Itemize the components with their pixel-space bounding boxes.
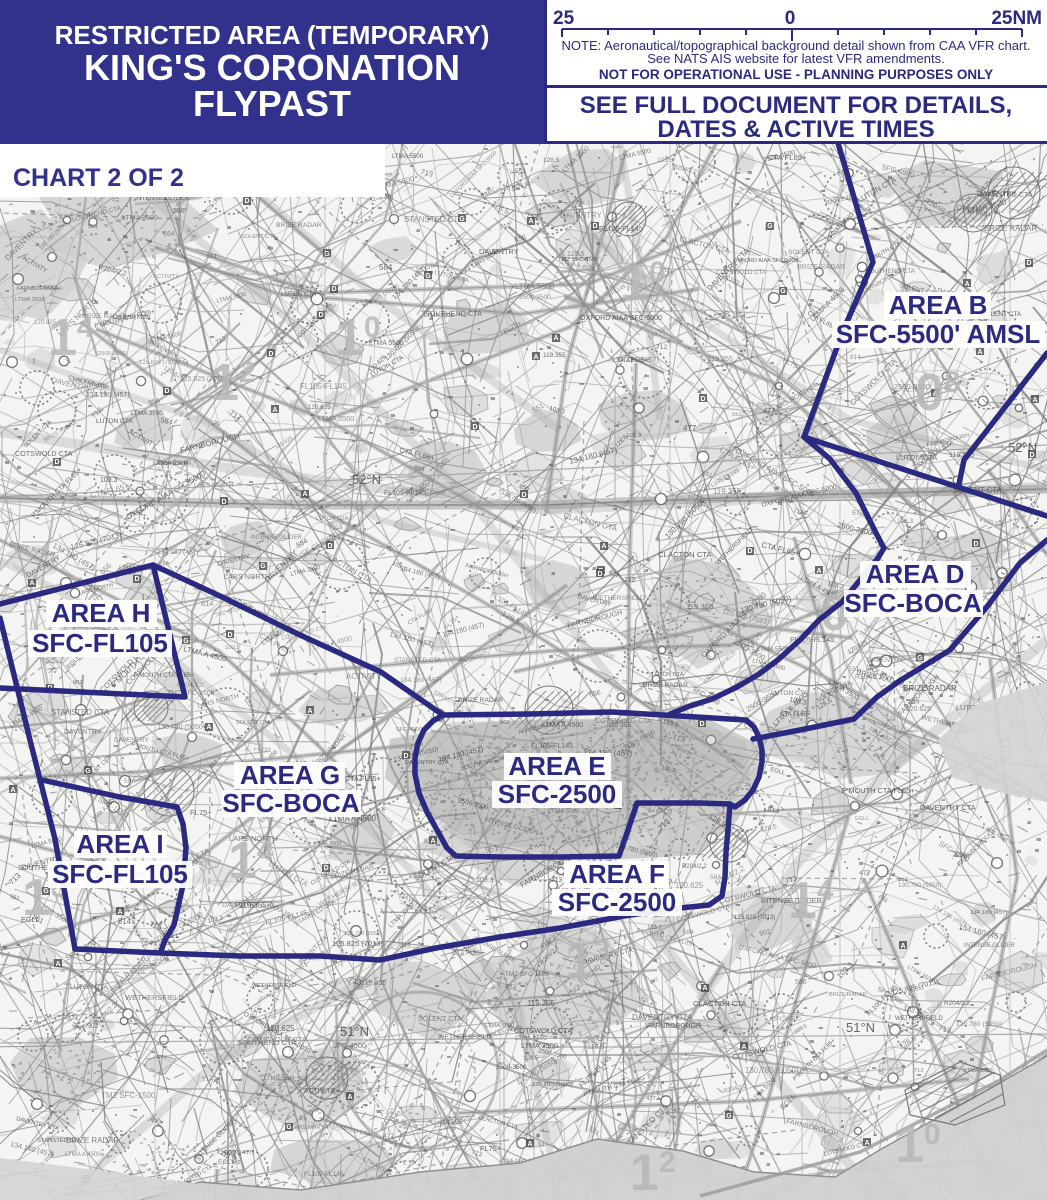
svg-text:LTMA 5500: LTMA 5500 [154,460,188,467]
svg-text:477: 477 [683,424,696,433]
svg-text:LTMA 5500: LTMA 5500 [548,808,580,815]
svg-text:712: 712 [656,344,667,351]
svg-text:SFC-FL105: SFC-FL105 [52,859,188,889]
svg-text:G: G [183,638,189,645]
svg-text:134.180 (457): 134.180 (457) [86,392,130,399]
svg-text:A: A [702,985,707,992]
svg-text:584: 584 [379,263,393,272]
svg-text:FL75+: FL75+ [190,808,212,817]
svg-text:103.3: 103.3 [476,877,494,884]
svg-text:814: 814 [850,354,861,361]
svg-text:551: 551 [207,254,217,260]
svg-text:D: D [747,548,752,555]
svg-text:LTMA 5500: LTMA 5500 [264,1076,295,1082]
svg-text:ACTIVITY: ACTIVITY [304,1088,335,1095]
svg-text:477: 477 [763,406,775,415]
svg-text:D: D [699,721,704,728]
svg-text:WETHERSFIELD: WETHERSFIELD [252,983,296,989]
svg-text:SOLENT CTA: SOLENT CTA [236,720,271,726]
svg-text:DAVENTRY: DAVENTRY [977,189,1017,198]
svg-text:0: 0 [785,8,796,29]
svg-text:551: 551 [732,412,743,418]
svg-text:LTMA 3500: LTMA 3500 [122,214,158,222]
svg-text:AREA H: AREA H [52,598,151,628]
svg-text:25: 25 [553,8,575,29]
svg-text:713: 713 [551,877,563,884]
svg-text:LTMA 3500: LTMA 3500 [521,1041,558,1050]
svg-text:TMZ SFC-1500: TMZ SFC-1500 [101,1091,156,1100]
svg-text:A: A [206,724,211,731]
svg-text:LTMA 5500: LTMA 5500 [424,313,454,319]
svg-text:LUTON CTA: LUTON CTA [316,516,348,522]
svg-text:COTSWOLD CTA: COTSWOLD CTA [595,717,652,725]
svg-text:A: A [741,1044,746,1051]
svg-text:25NM: 25NM [991,8,1042,29]
svg-text:119.355: 119.355 [361,978,386,987]
svg-text:COTSWOLD CTA: COTSWOLD CTA [716,269,767,276]
svg-text:134.180 (457): 134.180 (457) [970,910,1007,916]
svg-text:103.3: 103.3 [225,645,241,651]
svg-text:A: A [900,943,905,950]
svg-text:STANSTED CTA: STANSTED CTA [51,708,110,717]
svg-text:STANSTED CTA: STANSTED CTA [37,1138,81,1144]
svg-text:477: 477 [646,1096,656,1102]
svg-text:G: G [917,655,923,662]
svg-text:BRIZE RADAR: BRIZE RADAR [903,684,957,693]
svg-text:INTENSE GLIDER: INTENSE GLIDER [251,534,302,541]
svg-text:D: D [403,753,408,760]
svg-text:BRIZE RADAR: BRIZE RADAR [984,224,1037,233]
svg-text:BRIZE RADAR: BRIZE RADAR [276,222,322,229]
svg-text:SFC-5500' AMSL: SFC-5500' AMSL [836,319,1041,349]
svg-text:128.5: 128.5 [523,1055,539,1062]
svg-text:CLACTON CTA: CLACTON CTA [658,550,712,559]
svg-text:2500-3500: 2500-3500 [496,1064,527,1071]
svg-text:2500-3500: 2500-3500 [98,351,126,357]
svg-text:D: D [323,865,328,872]
svg-text:DAVENTRY: DAVENTRY [560,211,603,220]
svg-text:A: A [553,335,558,342]
svg-text:A: A [430,838,435,845]
svg-text:103.3: 103.3 [100,477,118,484]
svg-text:125.825 (7013): 125.825 (7013) [332,939,383,948]
svg-text:SFC-BOCA: SFC-BOCA [222,788,359,818]
svg-text:SFC-BOCA: SFC-BOCA [844,588,981,618]
svg-text:G: G [425,273,431,280]
svg-text:477: 477 [383,1133,394,1140]
svg-text:SOLENT CTA: SOLENT CTA [788,249,829,256]
svg-text:P'MOUTH CTA FL65+: P'MOUTH CTA FL65+ [842,786,915,795]
svg-text:BRIZE RADAR: BRIZE RADAR [797,262,845,271]
svg-text:FL105-FL145: FL105-FL145 [300,382,347,391]
svg-text:STANSTED CTA: STANSTED CTA [404,215,464,224]
svg-text:A: A [307,708,312,715]
svg-text:FARNBOROUGH: FARNBOROUGH [647,1023,701,1030]
svg-text:814: 814 [201,599,213,608]
svg-text:SFC-4500: SFC-4500 [396,727,422,733]
svg-text:NOT FOR OPERATIONAL USE - PLAN: NOT FOR OPERATIONAL USE - PLANNING PURPO… [599,67,993,82]
svg-text:A: A [527,1141,532,1148]
svg-text:FLYPAST: FLYPAST [193,83,351,124]
svg-text:130.780 (5050): 130.780 (5050) [157,723,205,731]
svg-text:ACTIVITY: ACTIVITY [346,672,382,681]
svg-text:D: D [244,198,249,205]
svg-text:119.355: 119.355 [708,356,733,363]
svg-text:INTENSE GLIDER: INTENSE GLIDER [964,942,1015,949]
svg-text:SOUTHEND CTA: SOUTHEND CTA [237,1038,297,1047]
svg-text:CTA FL65+: CTA FL65+ [768,153,807,162]
svg-text:103.3: 103.3 [657,157,674,164]
svg-text:51°N: 51°N [846,1020,875,1035]
svg-text:119.355: 119.355 [543,352,566,359]
svg-text:D: D [521,492,526,499]
svg-text:119.355: 119.355 [527,999,556,1008]
svg-text:130.780 (5050): 130.780 (5050) [745,1066,799,1075]
svg-text:FL105-FL145: FL105-FL145 [599,224,643,233]
svg-text:FL75+: FL75+ [254,747,272,753]
svg-text:D: D [221,499,226,506]
svg-text:125.825 (7013): 125.825 (7013) [734,914,775,921]
svg-text:G: G [767,223,773,230]
svg-text:G: G [286,1124,292,1131]
svg-text:A: A [533,354,538,361]
svg-text:584: 584 [683,929,694,936]
svg-text:712: 712 [792,708,804,717]
svg-text:DAVENTRY: DAVENTRY [64,729,102,736]
svg-text:G: G [726,1113,732,1120]
svg-text:LUTON CTA: LUTON CTA [771,690,808,697]
svg-text:119.355: 119.355 [686,602,713,611]
svg-text:AREA D: AREA D [866,559,965,589]
svg-text:LUTON CTA: LUTON CTA [70,984,108,991]
svg-text:D: D [164,388,169,395]
svg-text:551: 551 [894,439,905,445]
svg-text:A: A [302,491,307,498]
svg-text:D: D [973,541,978,548]
svg-text:CHART 2 OF 2: CHART 2 OF 2 [13,164,184,192]
svg-text:OXFORD AIAA SFC-5000: OXFORD AIAA SFC-5000 [733,258,798,264]
svg-text:814: 814 [399,941,411,949]
svg-text:G: G [780,288,786,295]
svg-text:A: A [1032,397,1037,404]
svg-text:902: 902 [500,720,510,726]
svg-text:A: A [528,218,533,225]
svg-text:SFC-FL105: SFC-FL105 [32,628,168,658]
svg-text:OXFORD AIAA SFC-5000: OXFORD AIAA SFC-5000 [580,314,662,322]
svg-text:712: 712 [624,577,636,584]
svg-text:AREA E: AREA E [508,751,605,781]
svg-text:LTMA 3500: LTMA 3500 [15,297,45,303]
svg-text:D: D [331,286,336,293]
svg-text:LTMA A 4500: LTMA A 4500 [542,722,583,729]
svg-text:DATES & ACTIVE TIMES: DATES & ACTIVE TIMES [657,116,934,143]
svg-text:SFC-4500: SFC-4500 [332,1041,366,1050]
svg-text:A: A [55,961,60,968]
svg-text:RESTRICTED AREA (TEMPORARY): RESTRICTED AREA (TEMPORARY) [55,20,490,50]
svg-text:R204/2.2: R204/2.2 [682,863,707,870]
svg-text:125.825 (7013): 125.825 (7013) [139,360,180,366]
svg-text:712: 712 [914,1068,924,1074]
svg-text:477: 477 [859,870,871,877]
svg-text:D: D [700,396,705,403]
svg-text:LTMA 3500: LTMA 3500 [318,414,354,423]
svg-text:LARS NORTH: LARS NORTH [291,1125,328,1131]
svg-text:52°N: 52°N [1008,440,1037,455]
svg-text:AREA G: AREA G [240,760,340,790]
svg-text:902: 902 [73,680,83,686]
svg-text:130.780 (5050): 130.780 (5050) [956,1021,1002,1028]
svg-text:584: 584 [710,874,721,881]
svg-text:AREA I: AREA I [76,829,163,859]
svg-text:D: D [1026,260,1031,267]
svg-text:D: D [472,424,477,431]
svg-text:130.780 (5050): 130.780 (5050) [898,882,941,889]
svg-text:D: D [327,543,332,550]
svg-text:DAVENTRY CTA: DAVENTRY CTA [920,803,976,812]
svg-text:D: D [54,459,59,466]
svg-text:WETHERSFIELD: WETHERSFIELD [438,1034,491,1041]
svg-text:KING'S CORONATION: KING'S CORONATION [84,47,460,88]
svg-text:CLACTON CTA: CLACTON CTA [693,999,747,1008]
svg-text:FARNBOROUGH: FARNBOROUGH [17,286,61,292]
svg-text:A: A [816,568,821,575]
svg-text:COTSWOLD CTA: COTSWOLD CTA [15,449,73,458]
svg-text:LTMA A 4500: LTMA A 4500 [65,1151,101,1158]
svg-text:A: A [29,580,34,587]
svg-text:134.180 (457): 134.180 (457) [157,549,199,556]
svg-text:G: G [260,563,266,570]
svg-text:A: A [10,787,15,794]
svg-text:A: A [117,909,122,916]
svg-text:103.3: 103.3 [897,518,913,525]
svg-text:D: D [134,576,139,583]
svg-text:AREA B: AREA B [889,290,988,320]
svg-text:586: 586 [795,979,807,986]
svg-text:DAVENTRY CTA: DAVENTRY CTA [632,1013,693,1022]
svg-text:130.780 (5050): 130.780 (5050) [344,931,382,937]
svg-text:A: A [347,1094,352,1101]
svg-text:G: G [85,768,91,775]
svg-text:FL105-FL145: FL105-FL145 [304,1171,344,1178]
svg-text:586: 586 [173,208,185,215]
svg-text:134.180 (457): 134.180 (457) [400,677,442,684]
svg-text:119.355: 119.355 [713,487,742,496]
svg-text:LTMA 5500: LTMA 5500 [392,153,424,160]
svg-text:LUTON CTA: LUTON CTA [281,291,317,298]
svg-text:TMZ SFC-1500: TMZ SFC-1500 [505,971,549,978]
svg-text:BRIZE RADAR: BRIZE RADAR [458,697,503,704]
svg-text:2500-3500: 2500-3500 [314,841,341,847]
svg-text:FL75+: FL75+ [480,1144,501,1153]
svg-text:CTA FL65+: CTA FL65+ [618,357,649,364]
svg-text:584: 584 [163,230,175,238]
svg-text:LTMA 5500: LTMA 5500 [515,282,555,291]
svg-text:BRIZE RADAR: BRIZE RADAR [829,992,867,998]
svg-text:SFC-2500: SFC-2500 [498,779,617,809]
svg-text:COTSWOLD CTA: COTSWOLD CTA [514,1026,572,1035]
svg-text:120.625: 120.625 [675,881,704,890]
svg-text:2500-3500: 2500-3500 [519,294,551,301]
svg-text:D: D [592,223,597,230]
svg-text:120.625: 120.625 [308,404,331,411]
svg-text:DAVENTRY: DAVENTRY [867,657,904,664]
svg-text:A: A [272,407,277,414]
svg-text:A: A [964,281,969,288]
svg-text:SOLENT CTA: SOLENT CTA [241,234,276,240]
svg-text:128.5: 128.5 [543,157,560,164]
svg-text:STANSTED CTA: STANSTED CTA [394,657,442,664]
svg-text:R204/2.2: R204/2.2 [944,1000,970,1007]
svg-text:D: D [268,351,273,358]
svg-text:BRIZE RADAR: BRIZE RADAR [643,682,688,689]
svg-text:551: 551 [515,168,526,175]
svg-text:551: 551 [88,224,98,230]
svg-text:CTA FL65+: CTA FL65+ [345,775,381,783]
svg-text:51°N: 51°N [340,1024,369,1039]
svg-text:D: D [597,571,602,578]
svg-text:477: 477 [157,1055,167,1061]
svg-text:A: A [601,543,606,550]
svg-text:D: D [227,632,232,639]
svg-text:586: 586 [124,778,135,785]
svg-text:LUTON CTA: LUTON CTA [652,672,684,678]
svg-text:SFC-2500: SFC-2500 [558,887,677,917]
svg-text:G: G [459,216,465,223]
svg-text:902: 902 [87,1022,99,1030]
svg-text:SFC-4500: SFC-4500 [772,1016,801,1023]
svg-text:A: A [977,349,982,356]
svg-text:EGLL: EGLL [855,816,869,822]
svg-text:130.780 (5050): 130.780 (5050) [532,1082,573,1088]
svg-text:See NATS AIS website for lates: See NATS AIS website for latest VFR amen… [647,51,944,66]
svg-text:120.625: 120.625 [266,1024,295,1033]
svg-text:814: 814 [118,917,132,926]
svg-text:LUTON CTA: LUTON CTA [96,418,133,425]
svg-text:FL105-FL145: FL105-FL145 [531,743,573,750]
svg-text:LTMA 3500: LTMA 3500 [131,410,163,417]
svg-text:128.5: 128.5 [567,251,585,258]
svg-text:52°N: 52°N [352,472,381,487]
svg-text:D: D [318,312,323,319]
svg-text:SEE FULL DOCUMENT FOR DETAILS,: SEE FULL DOCUMENT FOR DETAILS, [580,92,1012,119]
svg-text:LARS NORTH: LARS NORTH [224,572,270,581]
svg-text:AREA F: AREA F [569,859,665,889]
svg-text:SOLENT CTA: SOLENT CTA [418,1015,462,1023]
svg-text:ACTIVITY: ACTIVITY [153,274,179,280]
